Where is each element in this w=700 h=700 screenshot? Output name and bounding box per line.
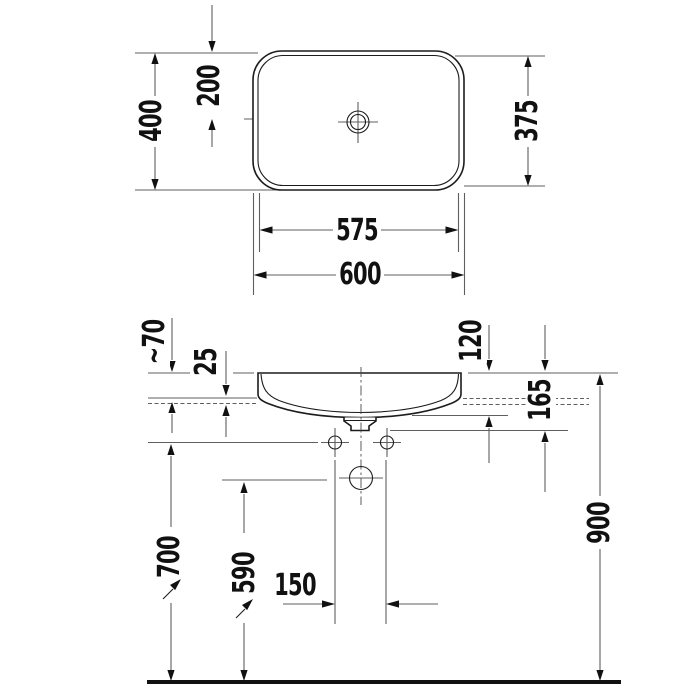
dim-label-600: 600 (338, 260, 383, 290)
dim-label-165: 165 (526, 378, 556, 423)
dim-label-400: 400 (137, 99, 167, 144)
technical-drawing-washbasin: 400 200 375 575 600 ~70 25 120 165 700 5… (0, 0, 700, 700)
top-view (135, 5, 545, 295)
dim-label-700: 700 (155, 535, 185, 580)
dim-label-375: 375 (513, 99, 543, 144)
dim-label-590: 590 (230, 551, 260, 596)
dim-label-70: ~70 (140, 318, 170, 366)
basin-profile-outer (258, 373, 461, 418)
dim-label-575: 575 (335, 216, 380, 246)
dim-label-25: 25 (192, 347, 222, 378)
fixing-hole-left (321, 428, 349, 457)
dim-label-150: 150 (273, 571, 318, 601)
drain-fitting (344, 418, 376, 431)
dim-label-900: 900 (585, 501, 615, 546)
dim-label-120: 120 (457, 319, 487, 364)
drawing-canvas (0, 0, 700, 700)
fixing-hole-right (373, 428, 401, 457)
side-view-dimension-lines (163, 318, 600, 670)
dim-label-200: 200 (195, 64, 225, 109)
